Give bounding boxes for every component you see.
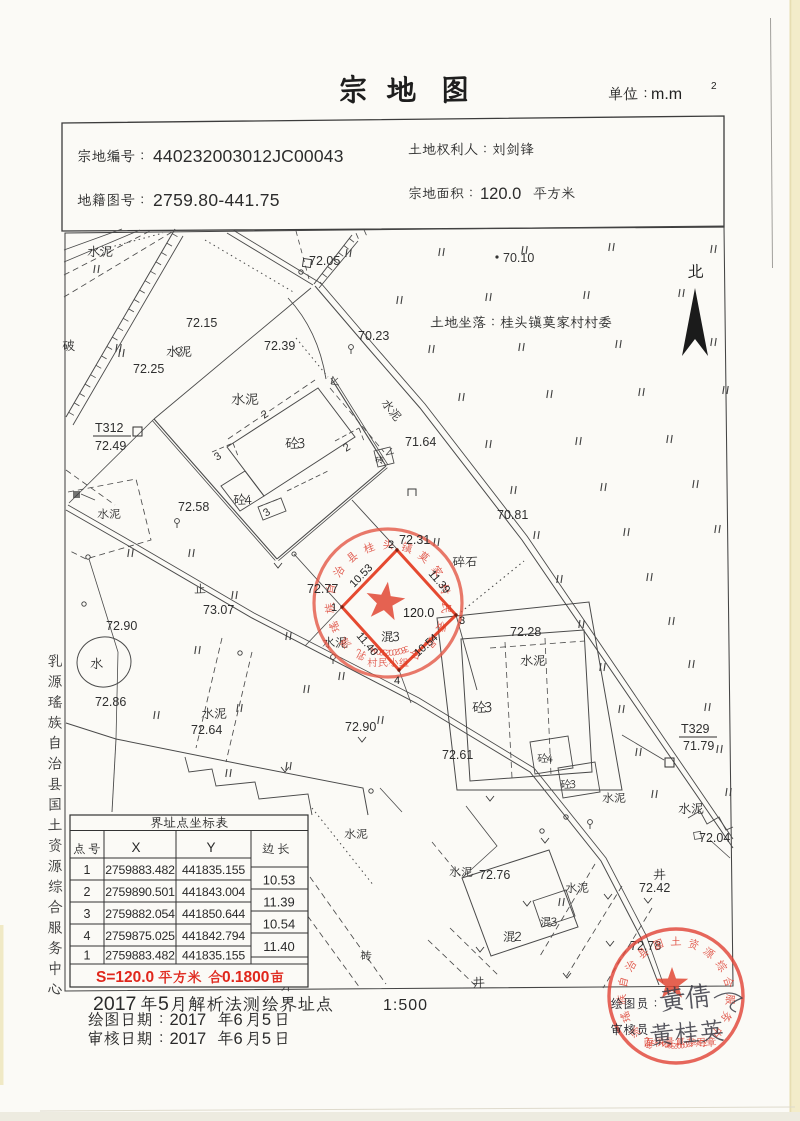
svg-text:1:500: 1:500 [383,997,428,1014]
svg-text:5: 5 [262,1011,271,1029]
svg-text:10.54: 10.54 [263,917,296,932]
svg-text:72.58: 72.58 [178,500,209,514]
svg-text:70.23: 70.23 [358,329,389,343]
svg-text:2759890.501: 2759890.501 [105,885,175,899]
svg-text:72.42: 72.42 [639,881,670,895]
svg-text:441850.644: 441850.644 [182,907,245,921]
svg-text:1: 1 [84,863,91,877]
svg-text:5: 5 [262,1030,271,1048]
svg-text:2759882.054: 2759882.054 [105,907,175,921]
svg-text:120.0: 120.0 [403,606,434,620]
svg-text:11.39: 11.39 [263,895,295,910]
svg-text:2017: 2017 [93,993,136,1015]
svg-text:72.90: 72.90 [345,720,376,734]
svg-text:73.07: 73.07 [203,603,234,617]
svg-text:6: 6 [234,1011,243,1029]
svg-text:2759883.482: 2759883.482 [105,949,175,963]
svg-text:2017: 2017 [170,1030,207,1048]
svg-text:Y: Y [206,840,215,855]
svg-text:70.10: 70.10 [503,251,534,265]
svg-text:3: 3 [459,615,465,627]
svg-text:72.15: 72.15 [186,316,217,330]
svg-text:72.28: 72.28 [510,625,541,639]
svg-text:120.0: 120.0 [480,185,521,203]
svg-text:4: 4 [84,929,91,943]
svg-text:2017: 2017 [170,1011,207,1029]
svg-text:72.64: 72.64 [191,723,222,737]
svg-text:4: 4 [394,675,400,687]
svg-text:1: 1 [331,602,337,614]
svg-text:70.81: 70.81 [497,508,528,522]
svg-text:1: 1 [84,949,91,963]
svg-text:72.05: 72.05 [309,254,340,268]
svg-text:2759875.025: 2759875.025 [105,929,175,943]
svg-text:71.64: 71.64 [405,435,436,449]
svg-text:72.77: 72.77 [307,582,338,596]
svg-text:72.25: 72.25 [133,362,164,376]
svg-text:2759883.482: 2759883.482 [105,863,175,877]
svg-text:72.76: 72.76 [479,868,510,882]
svg-text:2: 2 [388,539,394,551]
svg-text:72.31: 72.31 [399,533,430,547]
svg-text:5: 5 [158,993,169,1015]
svg-text:6: 6 [234,1030,243,1048]
svg-text:441843.004: 441843.004 [182,885,245,899]
svg-text:2: 2 [84,885,91,899]
svg-text:S=120.0: S=120.0 [96,969,154,986]
svg-text:72.39: 72.39 [264,339,295,353]
svg-text:2: 2 [711,81,717,92]
svg-text:2759.80-441.75: 2759.80-441.75 [153,190,280,210]
svg-text:441835.155: 441835.155 [182,949,245,963]
svg-text:m.m: m.m [651,86,682,103]
svg-text:71.79: 71.79 [683,739,714,753]
svg-text:72.78: 72.78 [630,939,661,953]
svg-text:3: 3 [84,907,91,921]
svg-text:T312: T312 [95,421,124,435]
svg-text:10.53: 10.53 [263,873,296,888]
svg-text:11.40: 11.40 [263,939,295,954]
svg-text:X: X [131,840,140,855]
svg-text:72.61: 72.61 [442,748,473,762]
svg-text:440232003012JC00043: 440232003012JC00043 [153,146,344,166]
svg-text:72.90: 72.90 [106,619,137,633]
svg-text:0.1800: 0.1800 [222,969,269,986]
svg-text:441835.155: 441835.155 [182,863,245,877]
svg-text:72.49: 72.49 [95,439,126,453]
svg-text:72.86: 72.86 [95,695,126,709]
svg-text:T329: T329 [681,722,710,736]
svg-text:72.04: 72.04 [699,831,730,845]
svg-text:441842.794: 441842.794 [182,929,245,943]
